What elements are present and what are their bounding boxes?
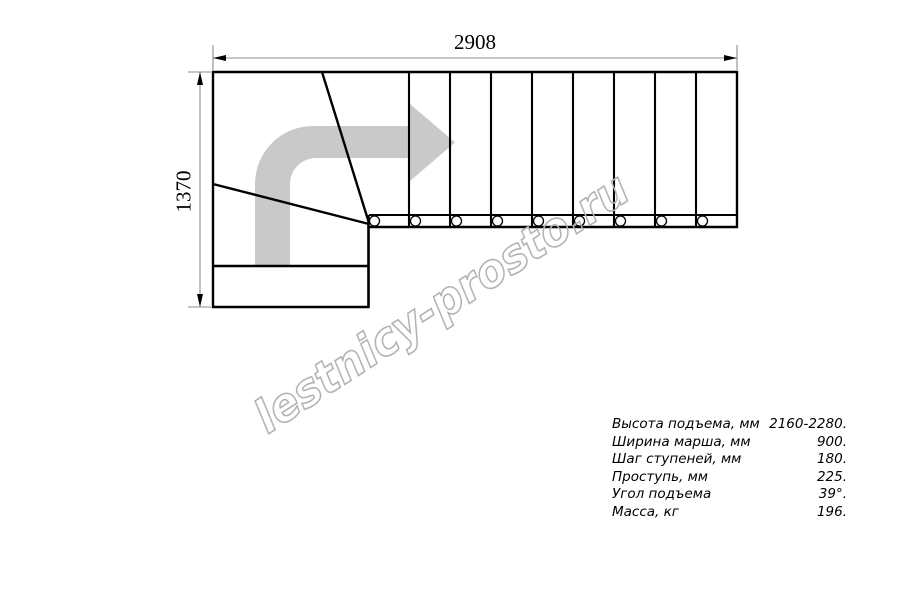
dimension-arrowhead (197, 72, 203, 85)
spec-label: Угол подъема (612, 486, 711, 504)
baluster-hole (698, 216, 708, 226)
baluster-hole (452, 216, 462, 226)
dimension-arrowhead (724, 55, 737, 61)
dimension-width-label: 2908 (440, 30, 510, 55)
spec-row: Шаг ступеней, мм 180. (612, 451, 847, 469)
dimension-height-label: 1370 (172, 157, 197, 227)
spec-row: Масса, кг 196. (612, 504, 847, 522)
baluster-hole (411, 216, 421, 226)
spec-label: Шаг ступеней, мм (612, 451, 741, 469)
spec-label: Масса, кг (612, 504, 679, 522)
direction-arrow-icon (255, 104, 455, 266)
dimension-arrowhead (213, 55, 226, 61)
dimension-arrowhead (197, 294, 203, 307)
spec-table: Высота подъема, мм 2160-2280. Ширина мар… (612, 416, 847, 522)
spec-row: Проступь, мм 225. (612, 469, 847, 487)
baluster-hole (493, 216, 503, 226)
spec-value: 900. (817, 434, 847, 452)
spec-value: 196. (817, 504, 847, 522)
spec-label: Проступь, мм (612, 469, 708, 487)
spec-label: Ширина марша, мм (612, 434, 751, 452)
spec-value: 39°. (819, 486, 847, 504)
spec-row: Высота подъема, мм 2160-2280. (612, 416, 847, 434)
stair-drawing-canvas: lestnicy-prosto.ru 2908 1370 Высота подъ… (0, 0, 900, 600)
spec-label: Высота подъема, мм (612, 416, 760, 434)
spec-value: 225. (817, 469, 847, 487)
winder-edge-line (213, 184, 369, 224)
baluster-hole (657, 216, 667, 226)
spec-row: Угол подъема 39°. (612, 486, 847, 504)
spec-row: Ширина марша, мм 900. (612, 434, 847, 452)
spec-value: 2160-2280. (769, 416, 847, 434)
watermark-text: lestnicy-prosto.ru (244, 161, 638, 443)
spec-value: 180. (817, 451, 847, 469)
baluster-hole (370, 216, 380, 226)
